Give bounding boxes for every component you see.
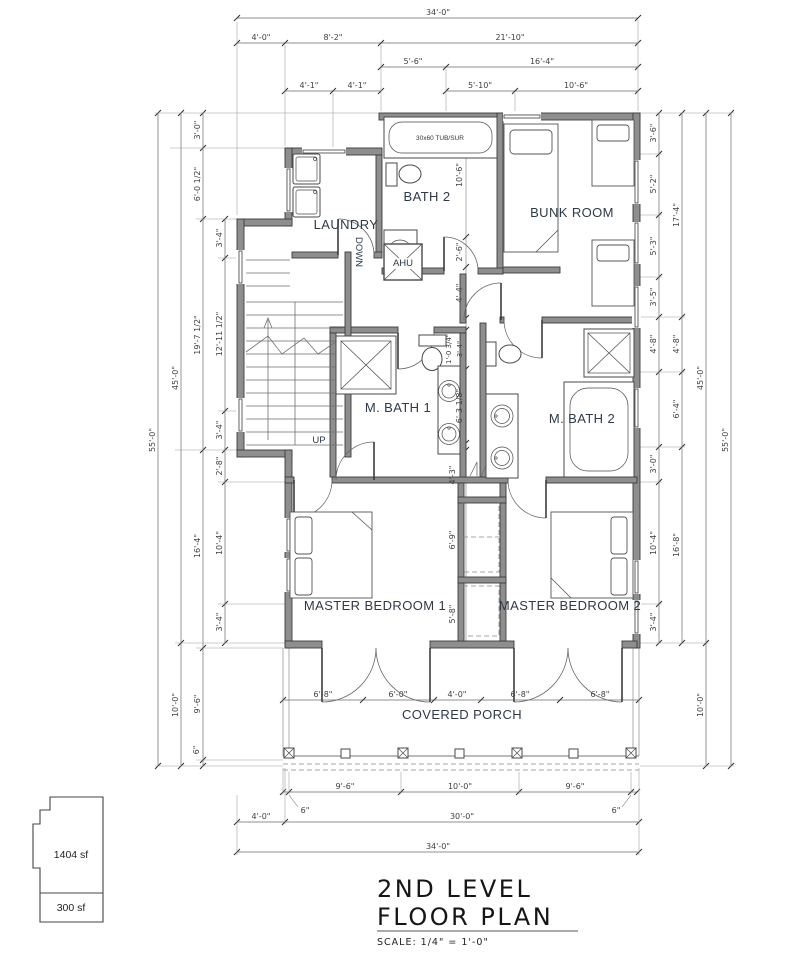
dim-top-g: 4'-1"	[348, 81, 367, 90]
dim-left-overall: 55'-0"	[148, 428, 157, 452]
title-block: 2ND LEVEL FLOOR PLAN SCALE: 1/4" = 1'-0"	[377, 875, 578, 948]
dim-left-porch: 10'-0"	[171, 693, 180, 717]
dim-int-i8: 6'-9"	[448, 531, 457, 550]
dim-right-porch: 10'-0"	[696, 693, 705, 717]
dim-right-a6: 3'-0"	[649, 455, 658, 474]
dim-right-b3: 6'-4"	[672, 400, 681, 419]
dim-right-a5: 4'-8"	[649, 335, 658, 354]
dim-top-e: 16'-4"	[530, 57, 554, 66]
dim-left-d2: 12'-11 1/2"	[215, 312, 224, 357]
dim-porch-p3: 4'-0"	[448, 690, 467, 699]
dim-right-a1: 3'-6"	[649, 124, 658, 143]
dim-top-a: 4'-0"	[252, 33, 271, 42]
dim-porch-p1: 6'-8"	[314, 690, 333, 699]
dim-porch-p5: 6'-8"	[591, 690, 610, 699]
dim-top-overall: 34'-0"	[426, 8, 450, 17]
floor-plan-sheet: 34'-0" 4'-0" 8'-2" 21'-10" 5'-6" 16'-4" …	[0, 0, 785, 960]
room-label-bunk-room: BUNK ROOM	[530, 205, 614, 220]
label-tub-size: 30x60 TUB/SUR	[416, 135, 464, 142]
dim-left-c1: 3'-0"	[193, 121, 202, 140]
room-label-bath2: BATH 2	[404, 189, 451, 204]
dim-left-d1: 3'-4"	[215, 229, 224, 248]
room-label-porch: COVERED PORCH	[402, 707, 522, 722]
dim-bottom-c: 9'-6"	[336, 782, 355, 791]
dim-int-i2: 2'-6"	[455, 243, 464, 262]
dim-left-main: 45'-0"	[171, 366, 180, 390]
dim-right-main: 45'-0"	[696, 366, 705, 390]
dim-top-i: 10'-6"	[564, 81, 588, 90]
dim-bottom-overall: 34'-0"	[426, 842, 450, 851]
dim-left-c2: 6'-0 1/2"	[193, 167, 202, 201]
sheet-title-line1: 2ND LEVEL	[377, 875, 532, 903]
dim-int-i4: 1'-0 3/4"	[445, 334, 453, 364]
dim-left-c5: 9'-6"	[193, 695, 202, 714]
dim-left-d4: 2'-8"	[215, 457, 224, 476]
dim-bottom-e: 9'-6"	[566, 782, 585, 791]
dim-right-overall: 55'-0"	[721, 428, 730, 452]
room-label-laundry: LAUNDRY	[314, 217, 379, 232]
sheet-scale-note: SCALE: 1/4" = 1'-0"	[377, 937, 489, 948]
dim-int-i1: 10'-6"	[455, 163, 464, 187]
dim-porch-p2: 6'-0"	[389, 690, 408, 699]
dim-bottom-b: 30'-0"	[450, 812, 474, 821]
dim-bottom-g: 6"	[612, 806, 621, 815]
key-plan: 1404 sf 300 sf	[33, 797, 103, 922]
dim-right-a2: 5'-2"	[649, 175, 658, 194]
dim-left-d5: 10'-4"	[215, 531, 224, 555]
floor-plan-drawing: 34'-0" 4'-0" 8'-2" 21'-10" 5'-6" 16'-4" …	[0, 0, 785, 960]
dim-porch-p4: 6'-8"	[511, 690, 530, 699]
dim-left-d3: 3'-4"	[215, 421, 224, 440]
room-label-m-bath1: M. BATH 1	[365, 400, 431, 415]
dim-right-b4: 16'-8"	[672, 533, 681, 557]
key-plan-porch-area: 300 sf	[57, 902, 86, 914]
dim-bottom-d: 10'-0"	[448, 782, 472, 791]
dim-int-i3: 4'-4"	[455, 284, 464, 303]
room-label-master2: MASTER BEDROOM 2	[499, 598, 641, 613]
stairs	[246, 260, 343, 445]
dim-right-a7: 10'-4"	[649, 531, 658, 555]
dim-left-c3: 19'-7 1/2"	[193, 315, 202, 354]
dim-int-i6: 6'-3 1/8"	[455, 389, 464, 423]
dim-top-b: 8'-2"	[324, 33, 343, 42]
dim-right-a8: 3'-4"	[649, 613, 658, 632]
room-label-m-bath2: M. BATH 2	[549, 411, 615, 426]
dim-int-i7: 4'-3"	[448, 466, 457, 485]
dim-top-d: 5'-6"	[404, 57, 423, 66]
dim-top-h: 5'-10"	[468, 81, 492, 90]
dim-right-b1: 17'-4"	[672, 203, 681, 227]
dim-int-i9: 5'-8"	[448, 605, 457, 624]
dim-int-i5: 3'-4"	[456, 341, 464, 358]
dim-right-a3: 5'-3"	[649, 237, 658, 256]
dim-left-c4: 16'-4"	[193, 534, 202, 558]
dim-left-d6: 3'-4"	[215, 613, 224, 632]
label-ahu: AHU	[393, 258, 413, 269]
key-plan-main-area: 1404 sf	[54, 849, 89, 861]
dim-bottom-a: 4'-0"	[252, 812, 271, 821]
dim-right-b2: 4'-8"	[672, 335, 681, 354]
dim-top-c: 21'-10"	[495, 33, 524, 42]
dim-right-a4: 3'-5"	[649, 288, 658, 307]
dim-left-c6: 6"	[192, 746, 201, 755]
dim-top-f: 4'-1"	[300, 81, 319, 90]
dim-bottom-f: 6"	[301, 806, 310, 815]
label-up: UP	[312, 435, 325, 446]
sheet-title-line2: FLOOR PLAN	[377, 903, 553, 931]
room-label-master1: MASTER BEDROOM 1	[304, 598, 446, 613]
label-down: DOWN	[353, 237, 364, 267]
